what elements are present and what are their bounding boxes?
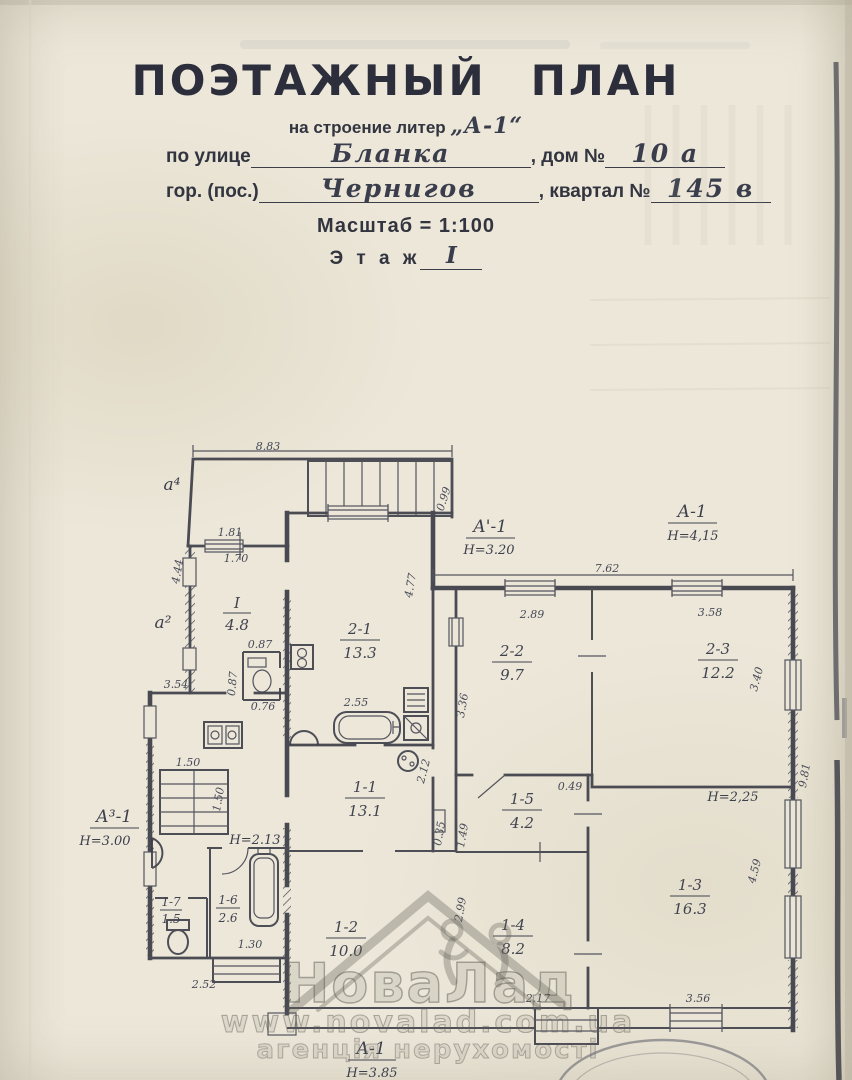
section-label-a3-1: А³-1 Н=3.00 (78, 807, 139, 849)
annex-label-a4: а⁴ (164, 475, 181, 495)
height-note-2-25: Н=2,25 (706, 790, 758, 805)
svg-text:А'-1: А'-1 (472, 517, 507, 537)
svg-text:1.49: 1.49 (454, 822, 471, 848)
svg-text:2-1: 2-1 (347, 620, 372, 638)
room-label-1-3: 1-3 16.3 (670, 876, 710, 918)
room-label-1-5: 1-5 4.2 (502, 790, 542, 832)
section-label-a1-upper: А'-1 Н=3.20 (462, 517, 515, 558)
svg-text:1-3: 1-3 (678, 876, 702, 894)
svg-text:2.55: 2.55 (343, 696, 369, 709)
svg-text:3.58: 3.58 (698, 606, 723, 619)
svg-text:4.8: 4.8 (224, 616, 249, 634)
room-label-2-3: 2-3 12.2 (698, 640, 738, 682)
svg-text:0.76: 0.76 (251, 700, 276, 713)
svg-text:8.83: 8.83 (256, 440, 281, 453)
room-label-2-2: 2-2 9.7 (492, 642, 532, 684)
svg-text:2-3: 2-3 (705, 640, 730, 658)
annex-label-a2: а² (155, 613, 172, 633)
svg-text:3.36: 3.36 (454, 692, 471, 718)
bathtub-2-1 (334, 712, 400, 743)
svg-text:7.62: 7.62 (595, 562, 620, 575)
page-edge-right (835, 0, 852, 1080)
svg-text:А-1: А-1 (676, 502, 706, 522)
svg-text:0.87: 0.87 (248, 638, 273, 651)
svg-text:1.81: 1.81 (218, 526, 243, 539)
svg-text:4.77: 4.77 (402, 572, 419, 599)
section-label-a1-right: А-1 Н=4,15 (666, 502, 718, 544)
bathtub-1-6 (250, 848, 278, 926)
room-label-1-7: 1-7 1.5 (160, 895, 182, 926)
svg-text:2.89: 2.89 (519, 608, 545, 621)
svg-text:Н=3.00: Н=3.00 (78, 834, 130, 849)
svg-text:0.35: 0.35 (431, 820, 448, 846)
svg-text:3.54: 3.54 (164, 678, 189, 691)
svg-text:Н=4,15: Н=4,15 (666, 529, 718, 544)
svg-text:Н=3.20: Н=3.20 (462, 543, 514, 558)
svg-text:0.49: 0.49 (558, 780, 583, 793)
svg-text:13.3: 13.3 (343, 644, 376, 662)
svg-text:9.7: 9.7 (500, 666, 524, 684)
scanned-floor-plan-page: ПОЭТАЖНЫЙПЛАН на строение литер „А-1“ по… (0, 0, 852, 1080)
stove-two-burner (291, 645, 313, 669)
svg-text:3.56: 3.56 (686, 992, 711, 1005)
svg-text:0.87: 0.87 (225, 671, 240, 697)
svg-text:1.70: 1.70 (224, 552, 249, 565)
svg-text:2-2: 2-2 (499, 642, 524, 660)
svg-text:1-2: 1-2 (334, 918, 358, 936)
svg-text:1-6: 1-6 (218, 893, 238, 907)
svg-text:2.6: 2.6 (217, 911, 237, 925)
svg-text:1.50: 1.50 (176, 756, 201, 769)
svg-text:I: I (233, 594, 241, 612)
svg-text:13.1: 13.1 (348, 802, 381, 820)
sink-2-1 (404, 716, 428, 740)
svg-text:2.52: 2.52 (191, 978, 217, 991)
washstand-hall (204, 722, 242, 748)
svg-text:Н=3.85: Н=3.85 (345, 1066, 397, 1080)
room-labels: I 4.8 2-1 13.3 2-2 9.7 2-3 12.2 1-1 (160, 594, 738, 960)
toilet-2-1 (290, 731, 318, 745)
svg-text:4.59: 4.59 (745, 858, 764, 886)
svg-text:3.40: 3.40 (747, 666, 766, 693)
svg-text:А³-1: А³-1 (95, 807, 132, 827)
svg-text:9.81: 9.81 (796, 762, 813, 788)
room-label-1-1: 1-1 13.1 (345, 778, 385, 820)
svg-text:4.2: 4.2 (509, 814, 534, 832)
room-label-I: I 4.8 (223, 594, 251, 634)
svg-text:1.5: 1.5 (161, 912, 180, 926)
floor-plan: I 4.8 2-1 13.3 2-2 9.7 2-3 12.2 1-1 (0, 0, 852, 1080)
svg-text:1.30: 1.30 (238, 938, 263, 951)
gas-meter (398, 751, 418, 771)
room-label-2-1: 2-1 13.3 (340, 620, 380, 662)
room-label-1-6: 1-6 2.6 (216, 893, 240, 925)
svg-text:12.2: 12.2 (701, 664, 734, 682)
watermark-tagline: агенція нерухомості (257, 1035, 600, 1065)
svg-text:1.50: 1.50 (210, 786, 227, 812)
svg-text:2.12: 2.12 (414, 758, 433, 786)
svg-text:16.3: 16.3 (673, 900, 706, 918)
watermark: НоваЛад www.novalad.com.ua агенція нерух… (221, 896, 635, 1065)
svg-text:1-5: 1-5 (510, 790, 534, 808)
svg-text:1-7: 1-7 (161, 895, 181, 909)
stove-2-1 (404, 688, 428, 712)
svg-text:1-1: 1-1 (353, 778, 377, 796)
height-note-2-13: Н=2.13 (228, 833, 280, 848)
